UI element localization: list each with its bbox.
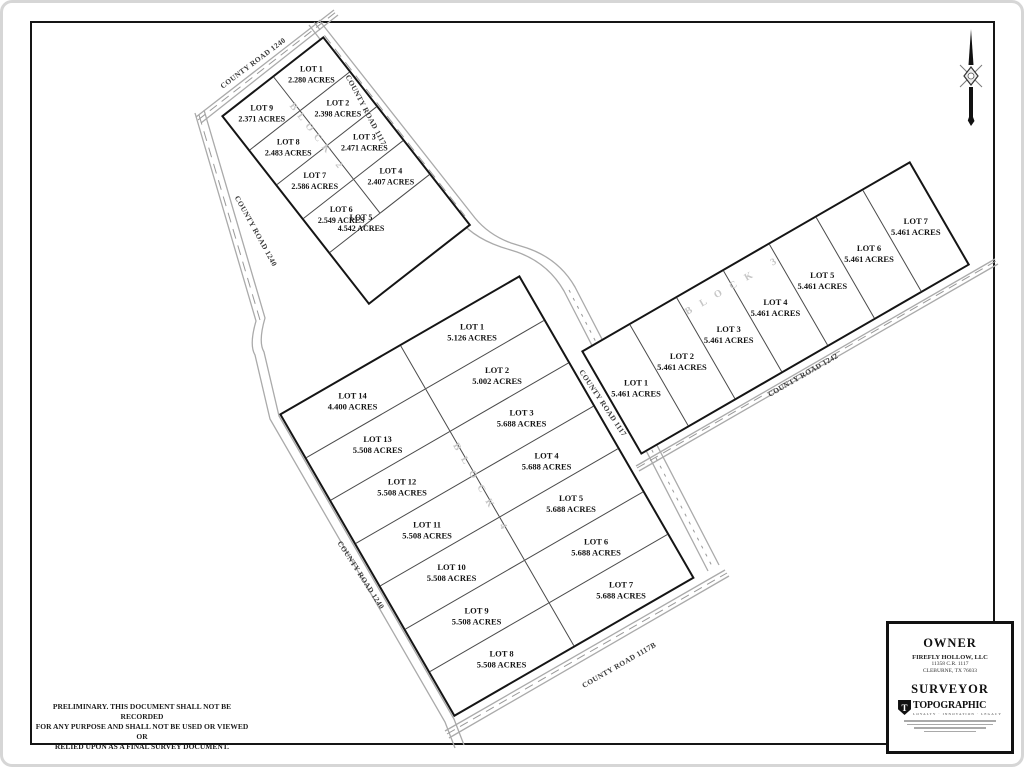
preliminary-note-line: FOR ANY PURPOSE AND SHALL NOT BE USED OR… [33,722,251,742]
lot-acreage-label: 2.371 ACRES [238,114,285,125]
lot-acreage-label: 5.508 ACRES [477,659,527,670]
lot-acreage-label: 5.461 ACRES [704,335,754,346]
lot-acreage-label: 4.542 ACRES [338,224,385,235]
lot-acreage-label: 5.508 ACRES [427,573,477,584]
lot-number-label: LOT 4 [368,166,415,177]
lot-number-label: LOT 1 [288,64,335,75]
surveyor-logo: T TOPOGRAPHIC LOYALTY · INNOVATION · LEG… [889,700,1011,716]
preliminary-note-line: RELIED UPON AS A FINAL SURVEY DOCUMENT. [33,742,251,752]
lot-acreage-label: 5.126 ACRES [447,333,497,344]
lot-acreage-label: 2.586 ACRES [291,182,338,193]
lot-number-label: LOT 3 [497,408,547,419]
lot-acreage-label: 5.688 ACRES [571,548,621,559]
surveyor-logo-shield-icon: T [898,700,911,715]
owner-heading: OWNER [889,636,1011,651]
lot-number-label: LOT 5 [797,270,847,281]
lot-acreage-label: 5.688 ACRES [497,419,547,430]
lot-number-label: LOT 4 [751,297,801,308]
lot-number-label: LOT 5 [546,493,596,504]
surveyor-fine-print [889,720,1011,732]
preliminary-note-line: PRELIMINARY. THIS DOCUMENT SHALL NOT BE … [33,702,251,722]
lot-number-label: LOT 3 [704,324,754,335]
lot-acreage-label: 4.400 ACRES [328,402,378,413]
owner-surveyor-box: OWNER FIREFLY HOLLOW, LLC 11358 C.R. 111… [886,621,1014,754]
owner-address-line1: 11358 C.R. 1117 [889,661,1011,668]
lot-acreage-label: 5.002 ACRES [472,376,522,387]
lot-number-label: LOT 9 [238,103,285,114]
lot-acreage-label: 5.461 ACRES [611,389,661,400]
lot-acreage-label: 5.688 ACRES [546,505,596,516]
lot-number-label: LOT 7 [291,171,338,182]
lot-number-label: LOT 4 [522,450,572,461]
lot-acreage-label: 5.461 ACRES [797,281,847,292]
lot-acreage-label: 5.508 ACRES [378,488,428,499]
lot-acreage-label: 5.508 ACRES [403,530,453,541]
lot-acreage-label: 5.508 ACRES [353,445,403,456]
lot-acreage-label: 5.461 ACRES [657,362,707,373]
surveyor-logo-tagline: LOYALTY · INNOVATION · LEGACY [913,712,1002,716]
lot-number-label: LOT 6 [844,243,894,254]
lot-acreage-label: 5.461 ACRES [751,308,801,319]
lot-acreage-label: 5.461 ACRES [844,254,894,265]
lot-number-label: LOT 14 [328,390,378,401]
lot-number-label: LOT 2 [657,351,707,362]
surveyor-heading: SURVEYOR [889,682,1011,697]
lot-number-label: LOT 11 [403,519,453,530]
owner-address-line2: CLEBURNE, TX 76033 [889,668,1011,675]
lot-acreage-label: 5.508 ACRES [452,616,502,627]
lot-number-label: LOT 2 [315,98,362,109]
lot-number-label: LOT 13 [353,433,403,444]
lot-number-label: LOT 8 [477,648,527,659]
lot-number-label: LOT 1 [611,378,661,389]
lot-acreage-label: 5.688 ACRES [522,462,572,473]
lot-number-label: LOT 2 [472,365,522,376]
lot-number-label: LOT 12 [378,476,428,487]
plat-sheet: LOT 9 2.371 ACRES LOT 8 2.483 ACRES LOT … [0,0,1024,767]
lot-acreage-label: 2.483 ACRES [265,148,312,159]
north-arrow-icon [949,25,993,129]
lot-number-label: LOT 8 [265,137,312,148]
lot-number-label: LOT 7 [596,579,646,590]
lot-acreage-label: 2.398 ACRES [315,109,362,120]
lot-acreage-label: 5.461 ACRES [891,227,941,238]
preliminary-note: PRELIMINARY. THIS DOCUMENT SHALL NOT BE … [33,702,251,752]
lot-acreage-label: 2.407 ACRES [368,177,415,188]
lot-acreage-label: 2.280 ACRES [288,75,335,86]
lot-number-label: LOT 1 [447,322,497,333]
lot-number-label: LOT 6 [571,536,621,547]
lot-number-label: LOT 9 [452,605,502,616]
lot-number-label: LOT 7 [891,216,941,227]
lot-number-label: LOT 5 [338,214,385,225]
surveyor-logo-brand: TOPOGRAPHIC [913,700,1002,711]
lot-number-label: LOT 10 [427,562,477,573]
lot-acreage-label: 5.688 ACRES [596,591,646,602]
owner-name: FIREFLY HOLLOW, LLC [889,654,1011,661]
